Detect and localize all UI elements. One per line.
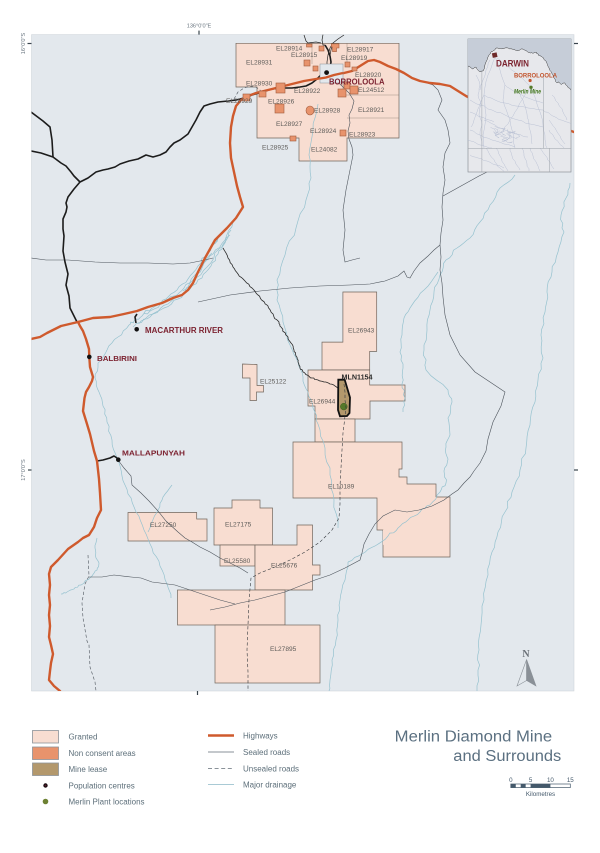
svg-text:Merlin Diamond Mine: Merlin Diamond Mine [395, 728, 553, 745]
svg-text:EL26944: EL26944 [309, 399, 336, 406]
svg-text:EL28923: EL28923 [349, 132, 376, 139]
svg-text:EL28917: EL28917 [347, 47, 374, 54]
svg-text:EL28931: EL28931 [246, 60, 273, 67]
svg-text:EL25580: EL25580 [224, 558, 251, 565]
svg-text:MLN1154: MLN1154 [342, 372, 374, 381]
svg-text:EL27895: EL27895 [270, 646, 297, 653]
svg-text:Unsealed roads: Unsealed roads [243, 764, 299, 773]
svg-text:Major drainage: Major drainage [243, 780, 297, 789]
svg-text:EL25676: EL25676 [271, 563, 298, 570]
svg-text:EL28919: EL28919 [341, 55, 368, 62]
svg-text:EL27250: EL27250 [150, 522, 177, 529]
svg-text:EL28929: EL28929 [226, 98, 253, 105]
svg-text:EL10189: EL10189 [328, 484, 355, 491]
svg-text:EL24512: EL24512 [358, 87, 385, 94]
svg-text:Highways: Highways [243, 731, 278, 740]
svg-text:EL28924: EL28924 [310, 128, 337, 135]
svg-text:0: 0 [509, 777, 513, 784]
svg-text:EL24082: EL24082 [311, 147, 338, 154]
svg-text:Sealed roads: Sealed roads [243, 748, 290, 757]
svg-text:MACARTHUR RIVER: MACARTHUR RIVER [145, 326, 223, 335]
svg-text:EL28921: EL28921 [358, 107, 385, 114]
svg-text:EL26943: EL26943 [348, 328, 375, 335]
svg-text:10: 10 [547, 777, 554, 784]
svg-text:Mine lease: Mine lease [69, 765, 108, 774]
svg-text:5: 5 [529, 777, 533, 784]
svg-text:EL28930: EL28930 [246, 81, 273, 88]
svg-text:15: 15 [567, 777, 574, 784]
svg-text:and Surrounds: and Surrounds [453, 748, 561, 765]
svg-text:Non consent areas: Non consent areas [69, 749, 136, 758]
svg-text:N: N [522, 649, 530, 660]
svg-text:EL28927: EL28927 [276, 121, 303, 128]
svg-text:17°0'0"S: 17°0'0"S [21, 459, 27, 481]
svg-text:Granted: Granted [69, 733, 98, 742]
svg-text:EL28926: EL28926 [268, 99, 295, 106]
svg-text:Population centres: Population centres [69, 781, 135, 790]
svg-text:Merlin Plant locations: Merlin Plant locations [69, 797, 145, 806]
svg-text:BALBIRINI: BALBIRINI [97, 354, 137, 363]
svg-text:DARWIN: DARWIN [496, 59, 529, 69]
svg-text:EL25122: EL25122 [260, 378, 287, 385]
svg-text:EL28928: EL28928 [314, 108, 341, 115]
svg-text:136°0'0"E: 136°0'0"E [187, 24, 212, 30]
svg-text:MALLAPUNYAH: MALLAPUNYAH [122, 449, 185, 458]
svg-text:Merlin Mine: Merlin Mine [514, 89, 541, 96]
svg-text:BORROLOOLA: BORROLOOLA [329, 77, 385, 87]
svg-text:BORROLOOLA: BORROLOOLA [514, 73, 557, 80]
svg-text:Kilometres: Kilometres [526, 791, 555, 798]
svg-text:EL28925: EL28925 [262, 145, 289, 152]
svg-text:EL27175: EL27175 [225, 522, 252, 529]
svg-text:EL28915: EL28915 [291, 52, 318, 59]
svg-text:EL28922: EL28922 [294, 88, 321, 95]
svg-text:16°0'0"S: 16°0'0"S [21, 32, 27, 54]
